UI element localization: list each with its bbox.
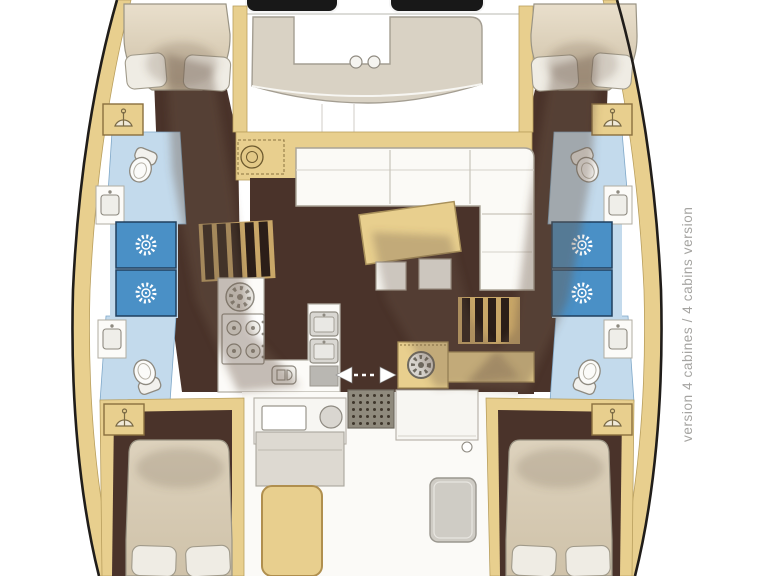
aft-cockpit [242,390,518,576]
cockpit-bench-cushion [262,486,322,576]
cockpit-grill-icon [320,406,342,428]
cupholder-icon [350,56,362,68]
cockpit-drain-icon [462,442,472,452]
shower-stall [116,270,176,316]
coachroof-strip-right [519,6,533,132]
galley-round-sink-icon [241,146,263,168]
pillow [565,545,610,576]
shower-stall [116,222,176,268]
pillow [185,545,231,576]
catamaran-floorplan: version 4 cabines / 4 cabins version [0,0,768,576]
galley-counter-block [310,366,338,386]
wardrobe-icon [104,404,144,435]
cockpit-counter-right [396,390,478,440]
cupholder-icon [368,56,380,68]
galley-top-unit [238,140,284,174]
cockpit-sink-icon [262,406,306,430]
sink-icon [604,186,632,224]
sink-icon [604,320,632,358]
cockpit-bench-back [256,432,344,486]
forward-cockpit [233,0,533,132]
bow-sunpad-right [390,0,484,12]
version-caption: version 4 cabines / 4 cabins version [680,207,695,442]
sink-icon [98,320,126,358]
wardrobe-icon [103,104,143,135]
wardrobe-icon [592,404,632,435]
wardrobe-icon [592,104,632,135]
catamaran-floorplan-page: version 4 cabines / 4 cabins version [0,0,768,576]
cockpit-entry-mat [348,390,394,428]
cockpit-table [430,478,476,542]
pillow [131,545,176,576]
sink-icon [96,186,124,224]
pillow [511,545,557,576]
bow-sunpad-left [246,0,338,12]
coachroof-strip-left [233,6,247,132]
